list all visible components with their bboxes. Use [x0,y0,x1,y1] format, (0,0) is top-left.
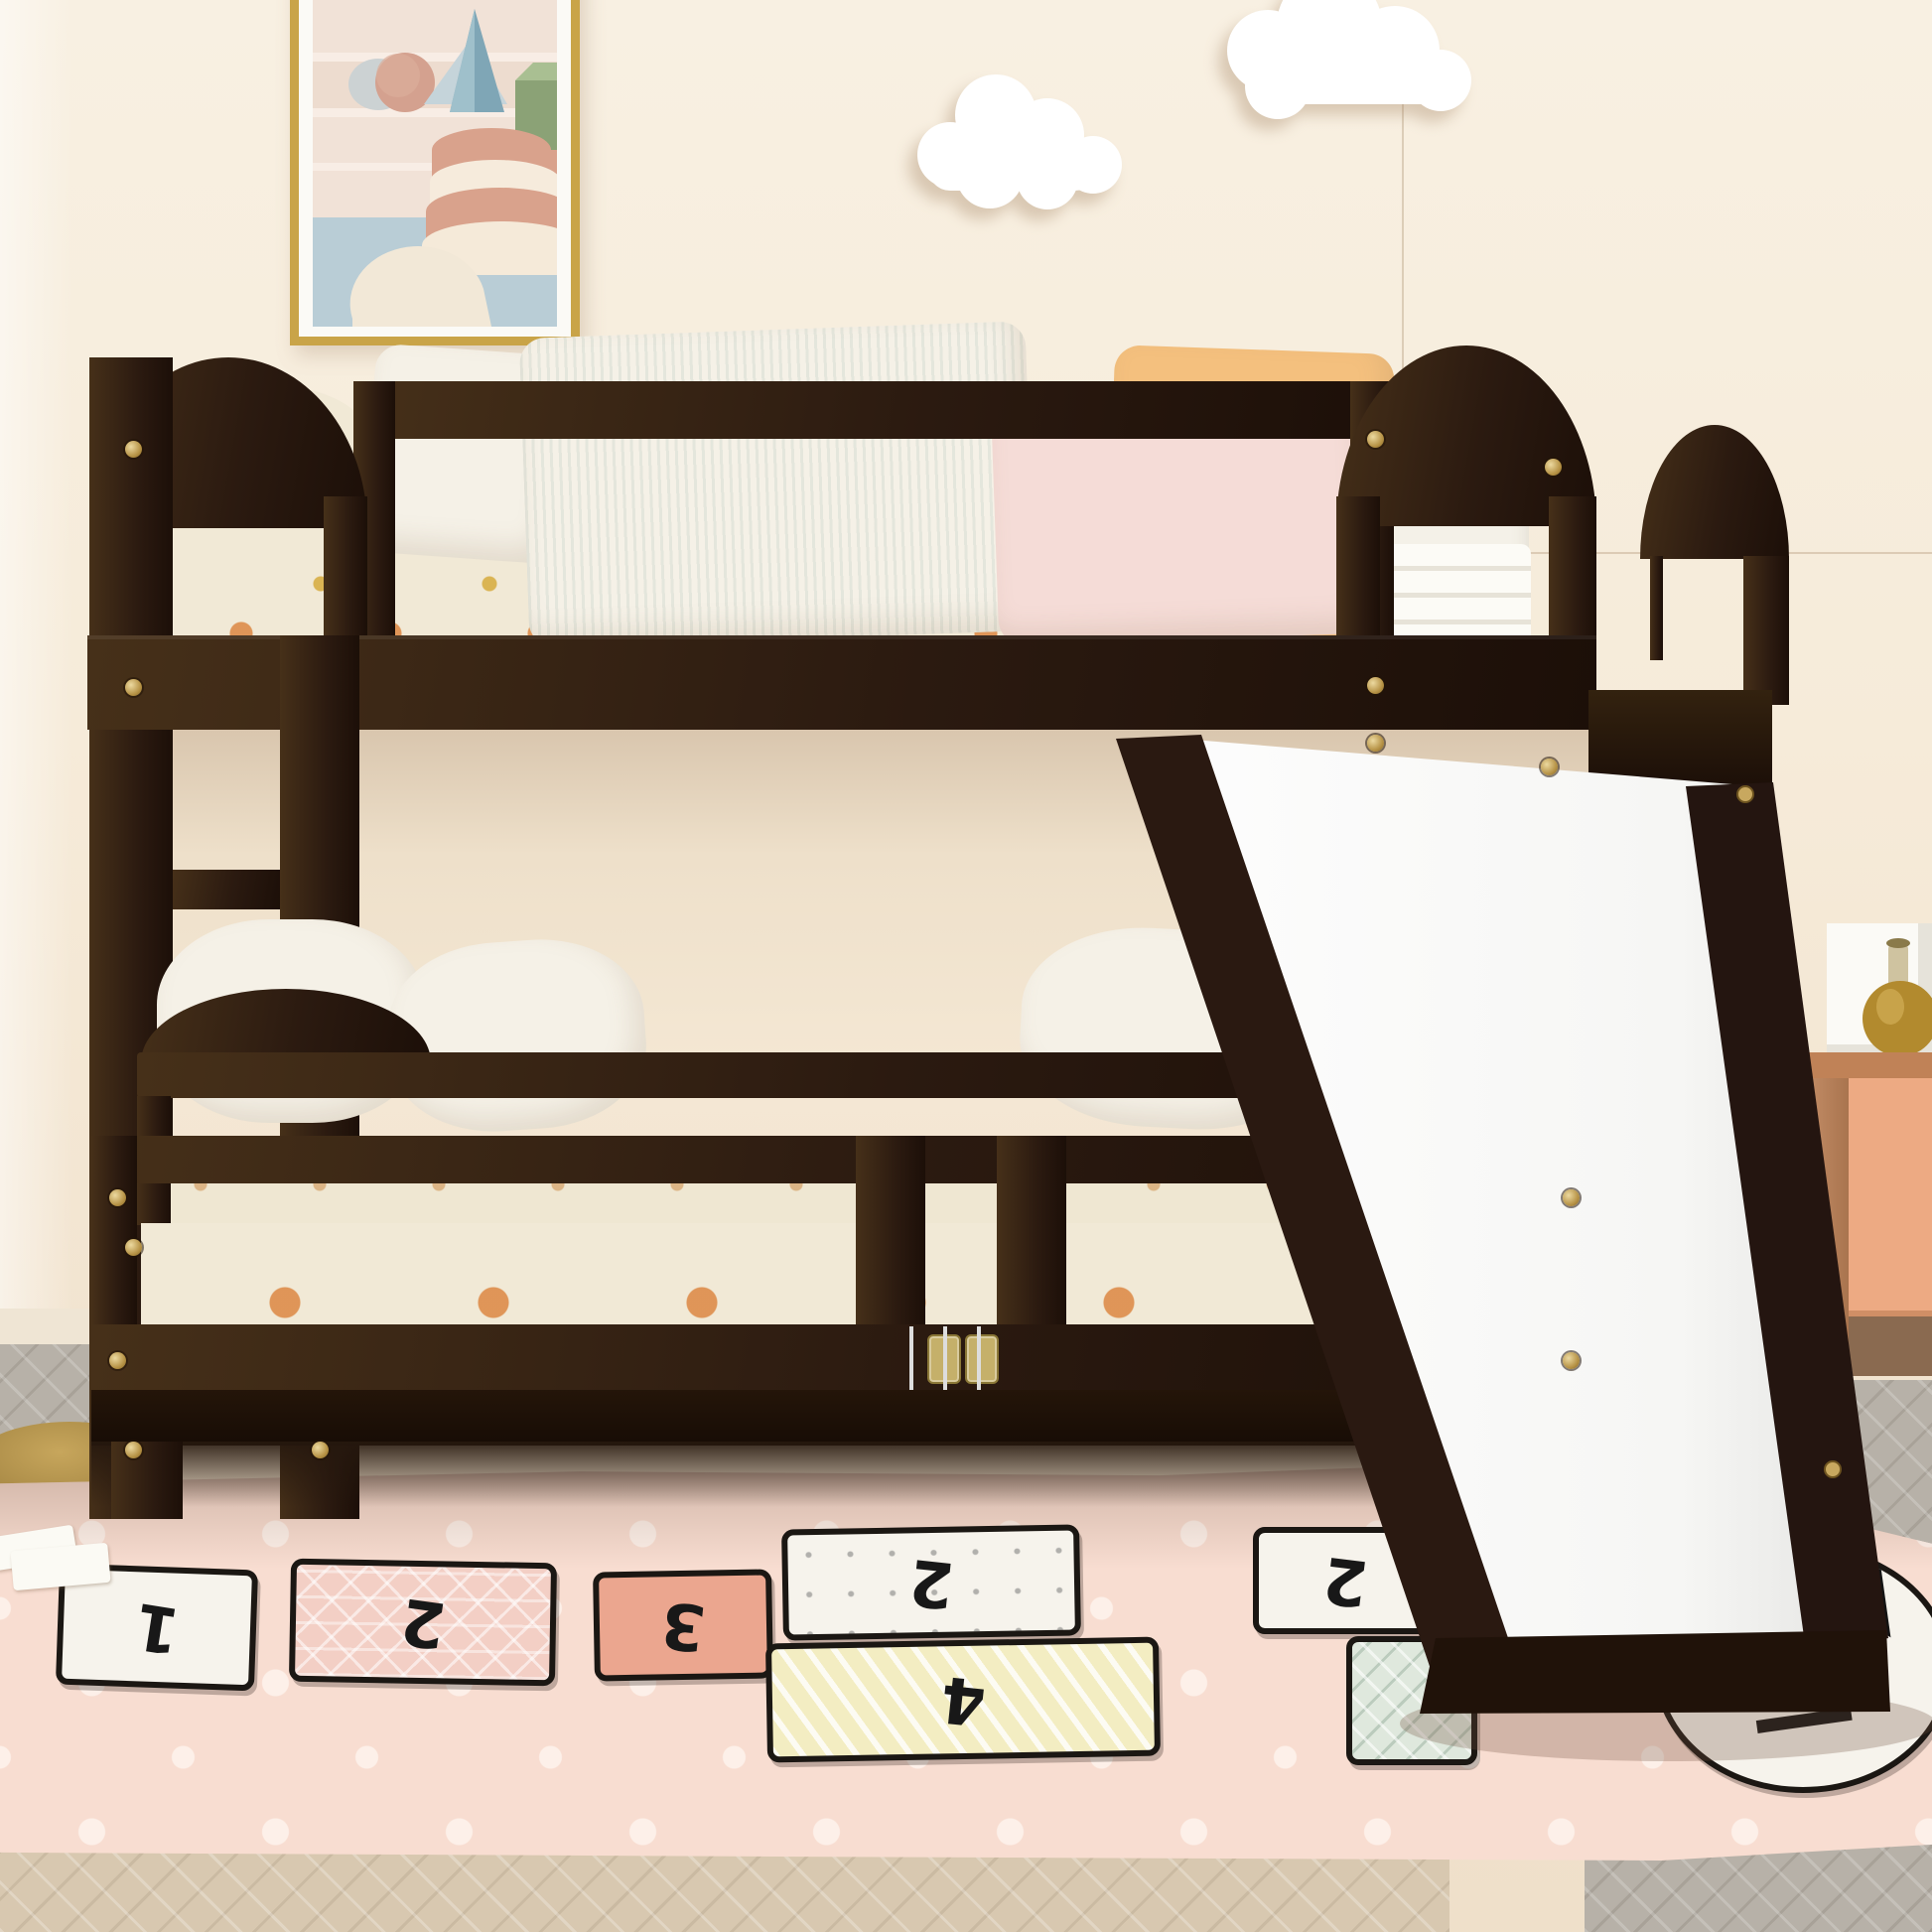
screw-cap-12 [109,1352,126,1369]
screw-cap-11 [109,1189,126,1206]
slide-screw-1 [1737,786,1753,802]
slide [0,0,1932,1932]
screw-cap-4 [125,1442,142,1458]
screw-cap-2 [125,679,142,696]
screw-cap-9 [1545,459,1562,476]
screw-cap-1 [125,441,142,458]
screw-cap-8 [1367,735,1384,752]
screw-cap-6 [1367,431,1384,448]
slide-base [1420,1630,1890,1714]
screw-cap-7 [1367,677,1384,694]
screw-cap-3 [125,1239,142,1256]
screw-cap-10 [1541,759,1558,775]
slide-screw-2 [1825,1461,1841,1477]
bedroom-photo: 1 2 3 2 4 2 [0,0,1932,1932]
screw-cap-5 [312,1442,329,1458]
screw-cap-13 [1563,1189,1580,1206]
screw-cap-14 [1563,1352,1580,1369]
